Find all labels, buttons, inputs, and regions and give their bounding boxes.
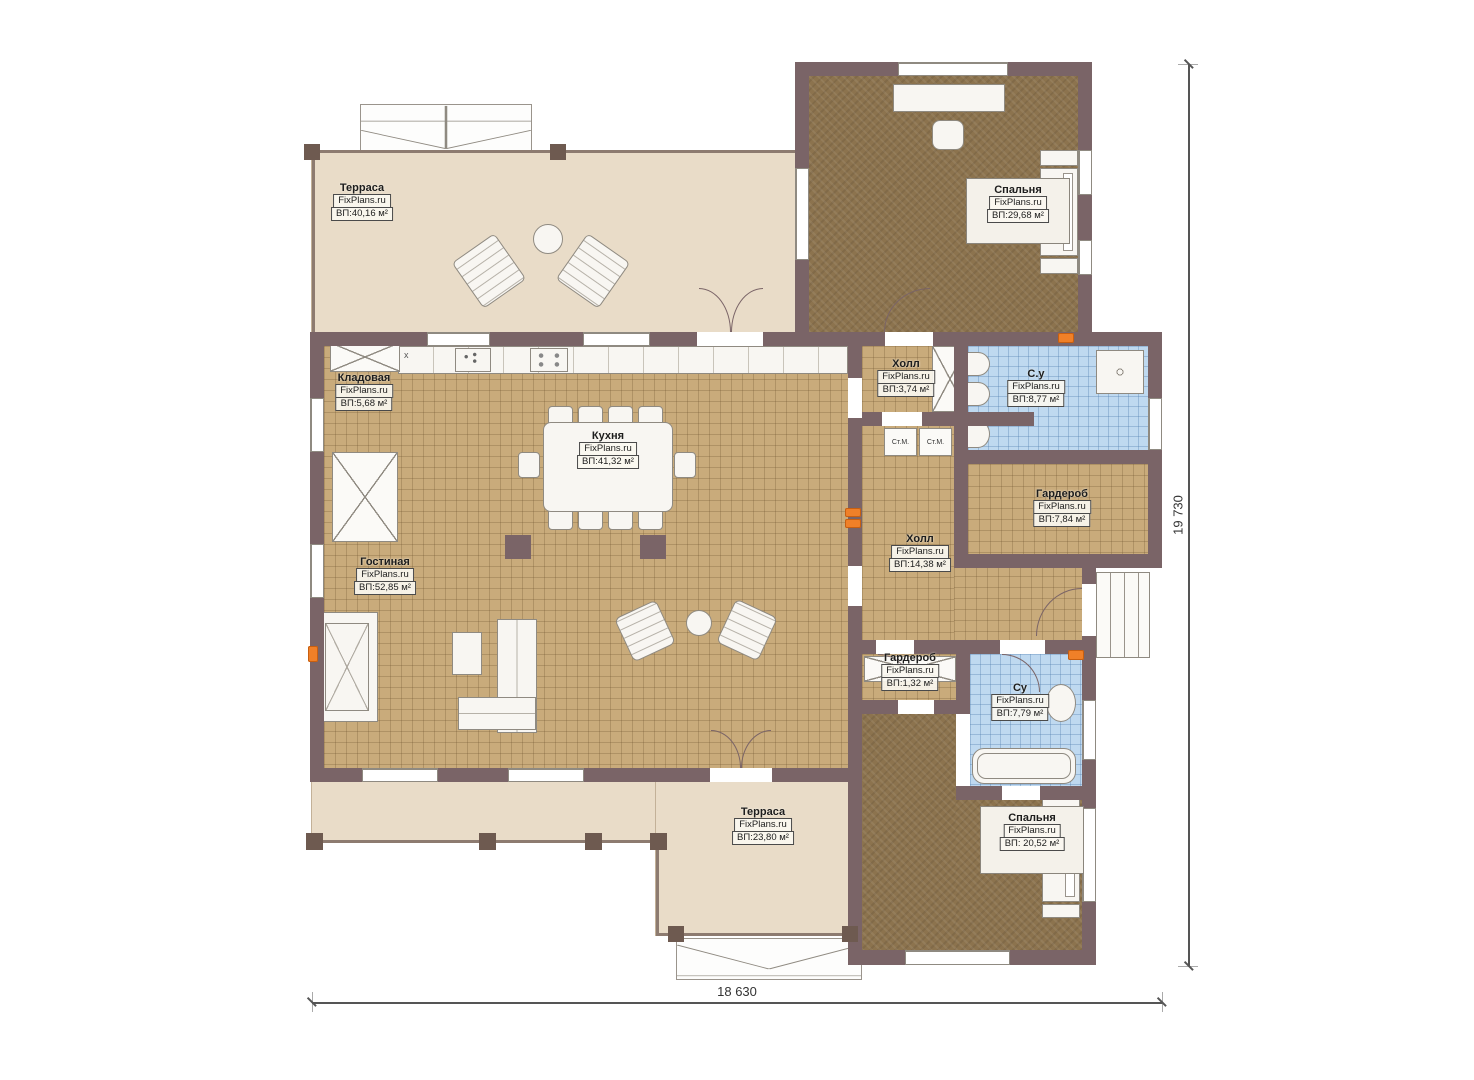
dimension-line-right bbox=[1188, 64, 1190, 966]
terrace-post bbox=[304, 144, 320, 160]
door-opening bbox=[697, 332, 763, 346]
awning-top bbox=[360, 104, 532, 152]
room-label-wardrobe-top: Гардероб FixPlans.ru ВП:7,84 м² bbox=[1033, 488, 1091, 527]
brand-label: FixPlans.ru bbox=[881, 664, 939, 678]
door-opening bbox=[898, 700, 934, 714]
chair bbox=[674, 452, 696, 478]
area-label: ВП:3,74 м² bbox=[878, 383, 935, 397]
bathtub bbox=[972, 748, 1076, 784]
side-table bbox=[686, 610, 712, 636]
wall bbox=[795, 332, 1162, 346]
floor-plan: x Ст.М. Ст.М. bbox=[0, 0, 1474, 1080]
door-opening bbox=[1082, 584, 1096, 636]
window bbox=[427, 332, 490, 346]
colonnade-post bbox=[479, 833, 496, 850]
dimension-label-width: 18 630 bbox=[717, 984, 757, 999]
window bbox=[905, 950, 1010, 965]
dimension-line-bottom bbox=[312, 1002, 1162, 1004]
awning-bottom bbox=[676, 938, 862, 980]
brand-label: FixPlans.ru bbox=[333, 194, 391, 208]
washer-icon: Ст.М. bbox=[919, 428, 952, 456]
column-stub bbox=[505, 535, 531, 559]
room-label-living: Гостиная FixPlans.ru ВП:52,85 м² bbox=[354, 556, 416, 595]
door-opening bbox=[710, 768, 772, 782]
room-label-storage: Кладовая FixPlans.ru ВП:5,68 м² bbox=[335, 372, 393, 411]
window bbox=[1148, 398, 1162, 450]
area-label: ВП: 20,52 м² bbox=[1000, 837, 1065, 851]
terrace-border-left bbox=[312, 150, 315, 332]
area-label: ВП:7,79 м² bbox=[992, 707, 1049, 721]
door-opening bbox=[1000, 640, 1045, 654]
porch-post bbox=[842, 926, 858, 942]
heater-marker bbox=[308, 646, 318, 662]
desk-chair bbox=[932, 120, 964, 150]
wall bbox=[1078, 62, 1092, 346]
brand-label: FixPlans.ru bbox=[877, 370, 935, 384]
brand-label: FixPlans.ru bbox=[991, 694, 1049, 708]
area-label: ВП:40,16 м² bbox=[331, 207, 393, 221]
wall bbox=[848, 412, 1034, 426]
brand-label: FixPlans.ru bbox=[1003, 824, 1061, 838]
door-opening bbox=[1002, 786, 1040, 800]
area-label: ВП:14,38 м² bbox=[889, 558, 951, 572]
room-label-hall-main: Холл FixPlans.ru ВП:14,38 м² bbox=[889, 533, 951, 572]
window bbox=[583, 332, 650, 346]
sink-icon bbox=[1046, 684, 1076, 722]
washer-label: Ст.М. bbox=[927, 439, 944, 446]
porch-post bbox=[668, 926, 684, 942]
brand-label: FixPlans.ru bbox=[891, 545, 949, 559]
washer-label: Ст.М. bbox=[892, 439, 909, 446]
wall bbox=[1148, 332, 1162, 568]
stove-icon bbox=[530, 348, 568, 372]
door-opening bbox=[885, 332, 933, 346]
floor-bedroom-bottom-a bbox=[862, 714, 956, 950]
brand-label: FixPlans.ru bbox=[1007, 380, 1065, 394]
fireplace bbox=[316, 612, 378, 722]
heater-marker bbox=[845, 508, 861, 517]
area-label: ВП:23,80 м² bbox=[732, 831, 794, 845]
area-label: ВП:1,32 м² bbox=[882, 677, 939, 691]
area-label: ВП:5,68 м² bbox=[336, 397, 393, 411]
nightstand bbox=[1042, 904, 1080, 918]
window bbox=[508, 768, 584, 782]
window bbox=[898, 62, 1008, 76]
area-label: ВП:7,84 м² bbox=[1034, 513, 1091, 527]
nightstand bbox=[1040, 258, 1078, 274]
entry-steps bbox=[1096, 572, 1150, 658]
window bbox=[362, 768, 438, 782]
bathtub-inner bbox=[977, 753, 1071, 779]
heater-marker bbox=[845, 519, 861, 528]
dimension-label-height: 19 730 bbox=[1171, 495, 1186, 535]
room-label-bath-top: С.у FixPlans.ru ВП:8,77 м² bbox=[1007, 368, 1065, 407]
door-opening bbox=[848, 566, 862, 606]
wall bbox=[954, 346, 968, 554]
floor-terrace-bottom-ext bbox=[656, 782, 848, 935]
brand-label: FixPlans.ru bbox=[734, 818, 792, 832]
chair bbox=[518, 452, 540, 478]
area-label: ВП:52,85 м² bbox=[354, 581, 416, 595]
window bbox=[310, 544, 324, 598]
terrace-post bbox=[550, 144, 566, 160]
heater-marker bbox=[1058, 333, 1074, 343]
brand-label: FixPlans.ru bbox=[356, 568, 414, 582]
coffee-table bbox=[452, 632, 482, 675]
brand-label: FixPlans.ru bbox=[989, 196, 1047, 210]
door-opening bbox=[882, 412, 922, 426]
closet-x bbox=[330, 342, 400, 372]
wall bbox=[968, 450, 1148, 464]
window bbox=[1078, 150, 1092, 195]
wall bbox=[954, 554, 1162, 568]
room-label-terrace-top: Терраса FixPlans.ru ВП:40,16 м² bbox=[331, 182, 393, 221]
room-label-bedroom-bottom: Спальня FixPlans.ru ВП: 20,52 м² bbox=[1000, 812, 1065, 851]
colonnade-post bbox=[650, 833, 667, 850]
sink-icon bbox=[966, 382, 990, 406]
sofa-seat bbox=[458, 697, 536, 730]
washer-icon: Ст.М. bbox=[884, 428, 917, 456]
window bbox=[1078, 240, 1092, 275]
brand-label: FixPlans.ru bbox=[335, 384, 393, 398]
column-stub bbox=[640, 535, 666, 559]
sink-icon bbox=[966, 352, 990, 376]
brand-label: FixPlans.ru bbox=[579, 442, 637, 456]
room-label-terrace-bottom: Терраса FixPlans.ru ВП:23,80 м² bbox=[732, 806, 794, 845]
area-label: ВП:8,77 м² bbox=[1008, 393, 1065, 407]
heater-marker bbox=[1068, 650, 1084, 660]
colonnade-post bbox=[585, 833, 602, 850]
room-label-bedroom-top: Спальня FixPlans.ru ВП:29,68 м² bbox=[987, 184, 1049, 223]
counter-mark: x bbox=[404, 350, 409, 360]
room-label-hall-top: Холл FixPlans.ru ВП:3,74 м² bbox=[877, 358, 935, 397]
room-label-kitchen: Кухня FixPlans.ru ВП:41,32 м² bbox=[577, 430, 639, 469]
door-opening bbox=[848, 378, 862, 418]
shower-tray bbox=[1096, 350, 1144, 394]
terrace-table bbox=[533, 224, 563, 254]
nightstand bbox=[1040, 150, 1078, 166]
closet-x bbox=[332, 452, 398, 542]
area-label: ВП:29,68 м² bbox=[987, 209, 1049, 223]
desk bbox=[893, 84, 1005, 112]
window bbox=[1082, 700, 1096, 760]
window bbox=[795, 168, 809, 260]
brand-label: FixPlans.ru bbox=[1033, 500, 1091, 514]
room-label-bath-bottom: Су FixPlans.ru ВП:7,79 м² bbox=[991, 682, 1049, 721]
window bbox=[310, 398, 324, 452]
colonnade-post bbox=[306, 833, 323, 850]
fireplace-inner bbox=[325, 623, 369, 711]
terrace-ext-bottom-line bbox=[656, 933, 848, 936]
area-label: ВП:41,32 м² bbox=[577, 455, 639, 469]
room-label-wardrobe-small: Гардероб FixPlans.ru ВП:1,32 м² bbox=[881, 652, 939, 691]
kitchen-sink-icon bbox=[455, 348, 491, 372]
window bbox=[1082, 808, 1096, 902]
terrace-ext-left-line bbox=[656, 840, 659, 935]
